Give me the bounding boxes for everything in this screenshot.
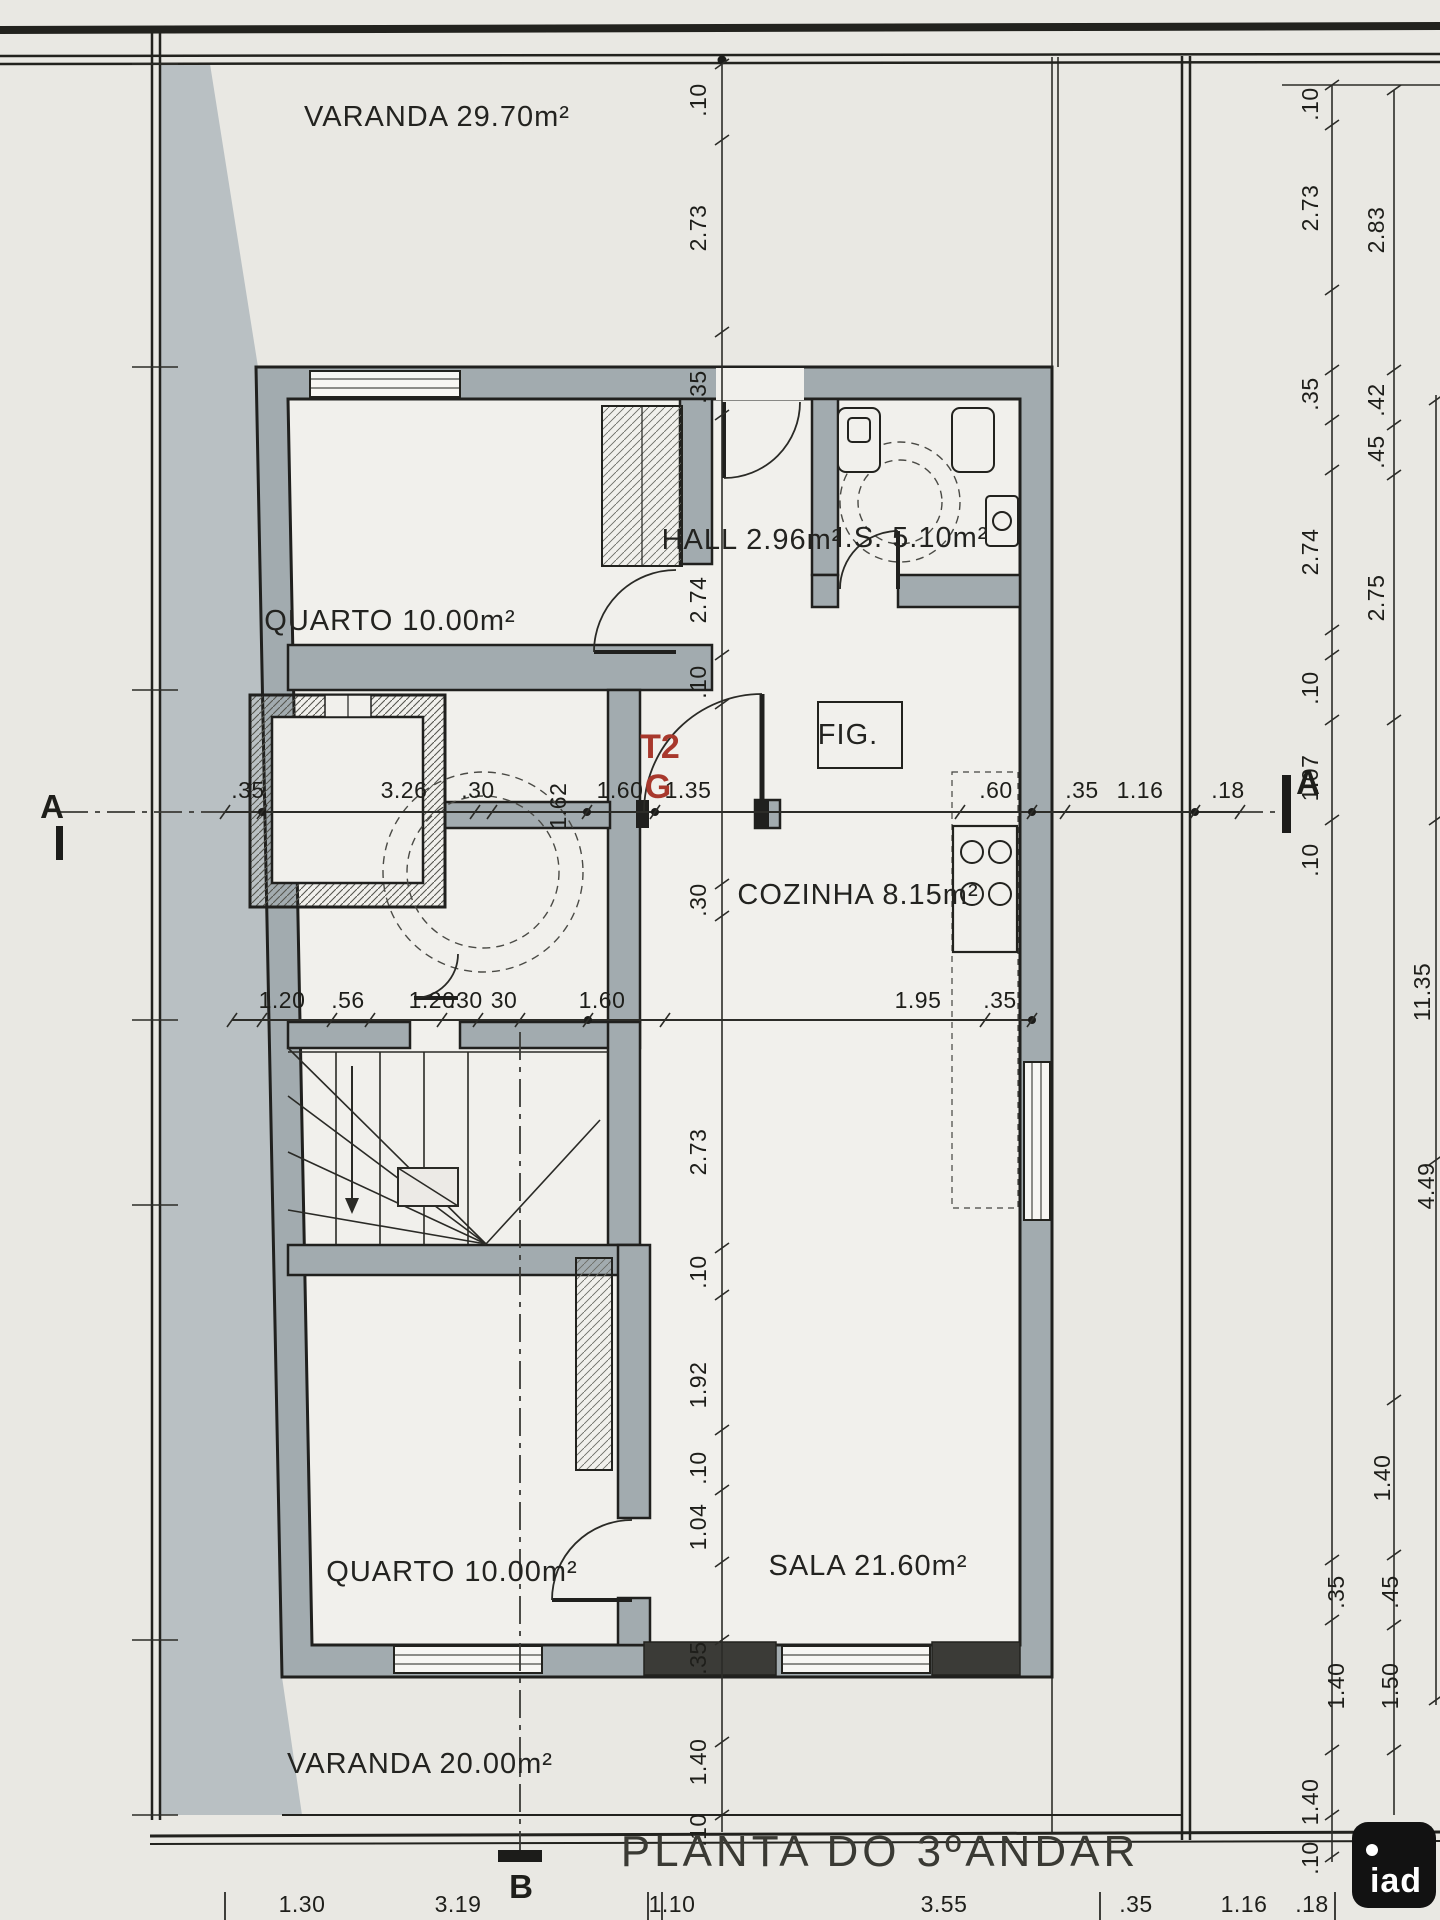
dim-bottom-row: .18 <box>1295 1891 1328 1917</box>
dim-right-outer-chain: 1.50 <box>1377 1663 1403 1710</box>
room-label-quarto-bottom: QUARTO 10.00m² <box>326 1556 577 1588</box>
room-label-varanda-bottom: VARANDA 20.00m² <box>287 1748 553 1780</box>
iad-logo-dot <box>1366 1844 1378 1856</box>
dim-right-edge-chain: 11.35 <box>1409 963 1435 1021</box>
dim-right-inner-chain: 2.73 <box>1297 185 1323 232</box>
dim-axis-row: 1.16 <box>1117 777 1164 803</box>
dim-axis-row: 1.60 <box>597 777 644 803</box>
dim-right-inner-chain: .10 <box>1297 671 1323 704</box>
wall-stair-top-left <box>288 1022 410 1048</box>
dim-center-chain: 1.40 <box>685 1739 711 1786</box>
window-quarto1 <box>310 371 460 397</box>
dim-mid-row: .56 <box>331 987 364 1013</box>
section-marker-b: B <box>509 1868 533 1905</box>
dim-vestibule: 1.62 <box>545 783 571 830</box>
dim-mid-row: 1.20 <box>259 987 306 1013</box>
dim-bottom-row: 3.19 <box>435 1891 482 1917</box>
dim-center-chain: .35 <box>685 370 711 403</box>
wall-pier <box>932 1642 1020 1675</box>
dim-axis-row: 1.35 <box>665 777 712 803</box>
dim-center-chain: .35 <box>685 1641 711 1674</box>
section-b-flag <box>498 1850 542 1862</box>
dim-mid-row: 30 <box>491 987 518 1013</box>
room-label-quarto-top: QUARTO 10.00m² <box>264 605 515 637</box>
dim-center-chain: .30 <box>685 883 711 916</box>
room-label-hall: HALL 2.96m² <box>662 524 843 556</box>
dim-mid-row: 1.95 <box>895 987 942 1013</box>
dim-center-chain: 1.92 <box>685 1362 711 1409</box>
section-a-right-flag <box>1282 775 1291 833</box>
top-boundary-thick <box>0 26 1440 30</box>
window-sala-right <box>1024 1062 1050 1220</box>
plan-title: PLANTA DO 3ºANDAR <box>621 1827 1139 1876</box>
dim-right-outer-chain: .45 <box>1377 1575 1403 1608</box>
dim-center-chain: .10 <box>685 1255 711 1288</box>
dim-bottom-row: 1.16 <box>1221 1891 1268 1917</box>
dim-right-inner-chain: .10 <box>1297 87 1323 120</box>
section-marker-a-left: A <box>40 788 64 825</box>
wall-corridor <box>608 690 640 1022</box>
dim-axis-row: 3.26 <box>381 777 428 803</box>
dim-bottom-row: 1.30 <box>279 1891 326 1917</box>
dim-right-inner-chain: 2.74 <box>1297 529 1323 576</box>
dim-right-inner-chain: .35 <box>1323 1575 1349 1608</box>
section-marker-a-right: A <box>1296 764 1320 801</box>
dim-center-chain: .10 <box>685 1451 711 1484</box>
dim-right-edge-chain: 4.49 <box>1413 1163 1439 1210</box>
wardrobe-quarto2 <box>576 1258 612 1470</box>
dim-axis-row: .60 <box>979 777 1012 803</box>
dim-center-chain: .10 <box>685 83 711 116</box>
dim-center-chain: 2.74 <box>685 577 711 624</box>
dim-axis-row: .35 <box>1065 777 1098 803</box>
room-label-sala: SALA 21.60m² <box>769 1550 968 1582</box>
iad-logo-text: iad <box>1370 1862 1422 1900</box>
bidet <box>952 408 994 472</box>
dim-axis-row: .18 <box>1211 777 1244 803</box>
dim-right-outer-chain: 2.83 <box>1363 207 1389 254</box>
floor-plan-page: VARANDA 29.70m²QUARTO 10.00m²HALL 2.96m²… <box>0 0 1440 1920</box>
room-label-cozinha: COZINHA 8.15m² <box>737 879 978 911</box>
dim-center-chain: 1.04 <box>685 1504 711 1551</box>
dim-right-inner-chain: 1.40 <box>1297 1779 1323 1826</box>
dim-right-outer-chain: 1.40 <box>1369 1455 1395 1502</box>
dim-mid-row: 1.60 <box>579 987 626 1013</box>
dim-bottom-row: 1.10 <box>649 1891 696 1917</box>
dim-bottom-row: .35 <box>1119 1891 1152 1917</box>
unit-type-label-line2: G <box>645 768 671 806</box>
dim-right-inner-chain: 1.40 <box>1323 1663 1349 1710</box>
dim-mid-row: .35 <box>983 987 1016 1013</box>
dim-right-inner-chain: .10 <box>1297 843 1323 876</box>
wall-is-bottom <box>898 575 1020 607</box>
floor-plan-canvas: VARANDA 29.70m²QUARTO 10.00m²HALL 2.96m²… <box>0 0 1440 1920</box>
unit-type-label-line1: T2 <box>640 728 680 766</box>
dim-mid-row: .30 <box>449 987 482 1013</box>
wall-quarto2-sala <box>618 1245 650 1518</box>
dim-right-outer-chain: .45 <box>1363 435 1389 468</box>
dim-center-chain: 2.73 <box>685 205 711 252</box>
room-label-is: I.S. 5.10m² <box>836 522 989 554</box>
iad-logo: iad <box>1352 1822 1436 1908</box>
room-label-varanda-top: VARANDA 29.70m² <box>304 101 570 133</box>
dim-axis-row: .35 <box>231 777 264 803</box>
dim-right-inner-chain: .10 <box>1297 1841 1323 1874</box>
section-a-left-flag <box>56 826 63 860</box>
dim-axis-row: .30 <box>461 777 494 803</box>
dim-center-chain: 2.73 <box>685 1129 711 1176</box>
window-sala <box>782 1646 930 1673</box>
dim-right-outer-chain: .42 <box>1363 383 1389 416</box>
wall-stair-sala <box>608 1022 640 1245</box>
dim-center-chain: .10 <box>685 665 711 698</box>
room-label-fig: FIG. <box>818 719 878 751</box>
dim-right-outer-chain: 2.75 <box>1363 575 1389 622</box>
dim-right-inner-chain: .35 <box>1297 377 1323 410</box>
dim-bottom-row: 3.55 <box>921 1891 968 1917</box>
